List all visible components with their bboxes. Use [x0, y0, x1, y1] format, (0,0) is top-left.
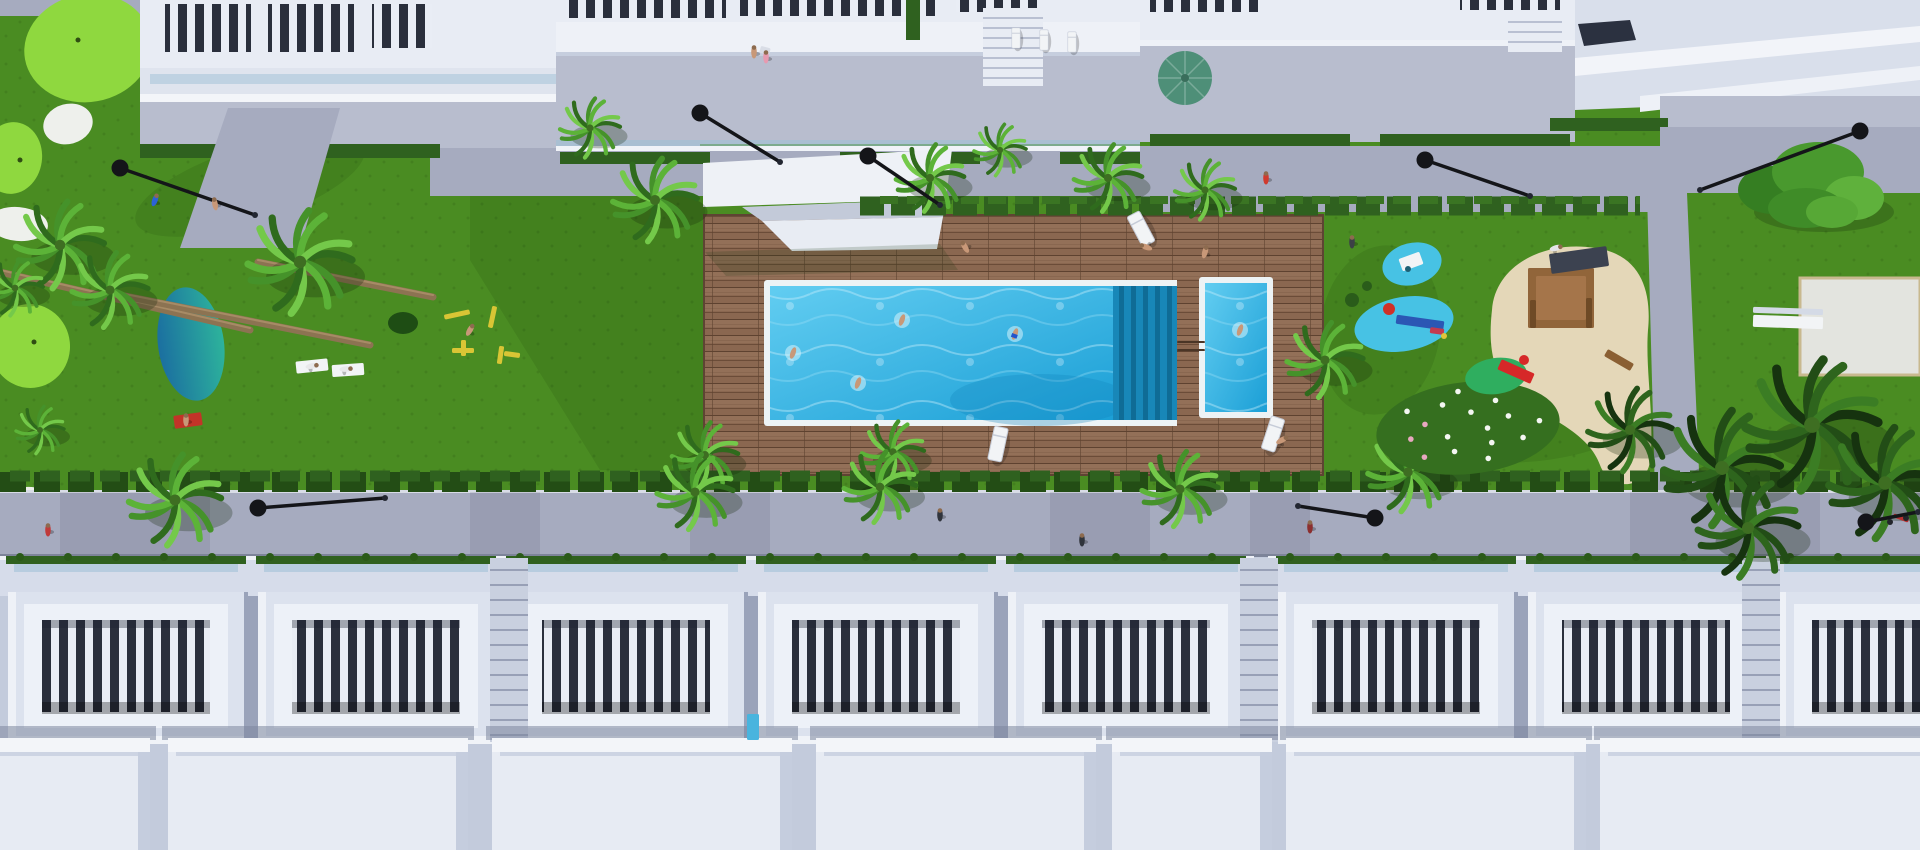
rear-roof-box [1106, 726, 1278, 850]
pergola-inner-shadow [792, 702, 960, 714]
palm-crown [1201, 186, 1208, 193]
prop [1362, 281, 1372, 291]
building-shadow [1250, 492, 1310, 562]
planter-strip [560, 152, 710, 164]
rear-roof-box [810, 726, 1102, 850]
swimmer [1007, 326, 1023, 342]
townhouse-unit [748, 553, 1008, 744]
palm-crown [169, 494, 180, 505]
bloom [1440, 402, 1446, 408]
gap-wall [1514, 592, 1528, 742]
box-fascia [1600, 738, 1920, 752]
townhouse-unit [248, 553, 508, 744]
lamp-head [1858, 514, 1875, 531]
planter-plant [564, 553, 572, 561]
golf-hole [32, 340, 37, 345]
bloom [1422, 454, 1428, 460]
swimmer [1232, 322, 1248, 338]
person-head [764, 50, 769, 55]
prop [1345, 293, 1359, 307]
planter-plant [1680, 553, 1688, 561]
palm-crown [1104, 174, 1112, 182]
aerial-resort-render [0, 0, 1920, 850]
lamp-head [692, 105, 709, 122]
bloom [1455, 389, 1461, 395]
prop [1536, 276, 1586, 320]
pergola-inner-shadow [1812, 620, 1920, 628]
lounger-bed [1012, 28, 1020, 48]
promenade [0, 490, 1920, 562]
stairwell [1742, 558, 1780, 742]
townhouse-unit [1768, 553, 1920, 744]
rear-roof-box [162, 726, 474, 850]
lounger-bed [1068, 32, 1076, 52]
townhouse-unit [0, 553, 258, 744]
swimmer [850, 375, 866, 391]
pergola-inner-shadow [1562, 702, 1730, 714]
lamp-head [1417, 152, 1434, 169]
planter-plant [1334, 553, 1342, 561]
palm-crown [876, 483, 885, 492]
pergola-inner-shadow [292, 702, 460, 714]
bloom [1520, 435, 1526, 441]
planter-plant [16, 553, 24, 561]
planter-plant [1016, 553, 1024, 561]
bloom [1485, 456, 1491, 462]
prop [1441, 333, 1447, 339]
planter-plant [612, 553, 620, 561]
planter-plant [660, 553, 668, 561]
planter-plant [1112, 553, 1120, 561]
stairwell [1240, 558, 1278, 742]
rendered-scene [0, 0, 1920, 850]
rear-roof-box [0, 726, 156, 850]
box-side [780, 752, 792, 850]
rear-roof-box [1280, 726, 1592, 850]
planter-strip [1060, 152, 1140, 164]
building-b-terrace [556, 56, 1140, 144]
lamp-pole [252, 212, 258, 218]
pergola-inner-shadow [1562, 620, 1730, 628]
pergola-inner-shadow [542, 702, 710, 714]
palm-crown [55, 240, 66, 251]
prop [1405, 266, 1411, 272]
planter-plant [766, 553, 774, 561]
planter-plant [1286, 553, 1294, 561]
prop [388, 312, 418, 334]
roof-highlight [1528, 592, 1536, 742]
prop [1383, 303, 1395, 315]
planter-plant [266, 553, 274, 561]
planter-strip [1380, 134, 1570, 146]
pergola-inner-shadow [542, 620, 710, 628]
planter-plant [1478, 553, 1486, 561]
pergola-slats [1812, 620, 1920, 712]
pergola-inner-shadow [292, 620, 460, 628]
box-line [824, 752, 1084, 756]
box-fascia [1112, 738, 1272, 752]
building-shadow [1050, 492, 1150, 562]
bloom [1485, 425, 1491, 431]
planter-plant [862, 553, 870, 561]
fascia-shadow [556, 52, 1140, 56]
planter-plant [1834, 553, 1842, 561]
pergola-inner-shadow [792, 620, 960, 628]
pool-deep-shade [950, 374, 1130, 426]
pergola-slats [1042, 620, 1210, 712]
roof-highlight [8, 592, 16, 742]
planter-plant [1882, 553, 1890, 561]
pool-step-edge [1167, 286, 1172, 420]
planter-plant [1430, 553, 1438, 561]
palm-crown [997, 147, 1003, 153]
lamp-head [112, 160, 129, 177]
box-shadow [1594, 726, 1920, 740]
palm-crown [1625, 425, 1635, 435]
gap-wall [244, 592, 258, 742]
planter-plant [458, 553, 466, 561]
swimmer [894, 312, 910, 328]
planter-plant [1536, 553, 1544, 561]
prop [1519, 355, 1529, 365]
box-fascia [816, 738, 1096, 752]
townhouse-unit [498, 553, 758, 744]
person-head [1264, 171, 1269, 176]
planter-plant [314, 553, 322, 561]
pergola-inner-shadow [1042, 702, 1210, 714]
planter-plant [1208, 553, 1216, 561]
pergola-slats [542, 620, 710, 712]
box-side [1574, 752, 1586, 850]
planter-plant [1632, 553, 1640, 561]
person-head [1080, 533, 1085, 538]
hedge-strip [906, 0, 920, 40]
pool-step-edge [1155, 286, 1160, 420]
townhouse-unit [1518, 553, 1778, 744]
box-shadow [1280, 726, 1592, 740]
palm-crown [1878, 476, 1891, 489]
pergola-slats [792, 620, 960, 712]
pergola-roof-slats [165, 4, 251, 52]
lamp-pole [777, 159, 783, 165]
pergola-inner-shadow [1812, 702, 1920, 714]
prop [1177, 349, 1205, 351]
lamp-head [1367, 510, 1384, 527]
bloom [1468, 409, 1474, 415]
planter-plant [410, 553, 418, 561]
planter-plant [362, 553, 370, 561]
box-side [138, 752, 150, 850]
bloom [1452, 449, 1458, 455]
planter-plant [1064, 553, 1072, 561]
pool-step-edge [1131, 286, 1136, 420]
tree-canopy [1806, 196, 1858, 228]
pergola-roof-slats [1150, 0, 1260, 12]
box-shadow [810, 726, 1102, 740]
planter-plant [1584, 553, 1592, 561]
rear-roof-box [486, 726, 798, 850]
person-head [184, 413, 189, 418]
box-fascia [1286, 738, 1586, 752]
pergola-inner-shadow [1042, 620, 1210, 628]
person-head [1350, 235, 1355, 240]
pergola-slats [292, 620, 460, 712]
box-line [1608, 752, 1920, 756]
palm-crown [1715, 461, 1729, 475]
palm-crown [12, 285, 19, 292]
palm-crown [690, 487, 699, 496]
pergola-slats [1312, 620, 1480, 712]
palm-crown [37, 427, 43, 433]
building-c-terrace [1660, 96, 1920, 130]
roof-highlight [758, 592, 766, 742]
rear-roof-box [1594, 726, 1920, 850]
lamp-pole [1295, 503, 1301, 509]
palm-crown [105, 285, 114, 294]
building-b-fascia [556, 22, 1140, 56]
lamp-head [860, 148, 877, 165]
pergola-slats [1562, 620, 1730, 712]
palm-crown [650, 195, 660, 205]
box-side [1260, 752, 1272, 850]
bloom [1537, 418, 1543, 424]
person-head [938, 508, 943, 513]
pool-step-edge [1143, 286, 1148, 420]
box-fascia [0, 738, 150, 752]
pergola-roof-slats [268, 4, 354, 52]
bloom [1404, 409, 1410, 415]
balustrade-fascia [556, 146, 1140, 151]
bloom [1408, 436, 1414, 442]
lamp-head [250, 500, 267, 517]
kids-pool-texture [1205, 283, 1267, 412]
prop [1177, 341, 1205, 343]
box-line [1294, 752, 1574, 756]
palm-crown [294, 256, 306, 268]
pergola-roof-slats [372, 4, 432, 48]
gap-wall [994, 592, 1008, 742]
prop [1753, 315, 1823, 329]
box-shadow [0, 726, 156, 740]
lamp-head [1852, 123, 1869, 140]
pergola-roof-slats [566, 0, 726, 18]
box-line [176, 752, 456, 756]
townhouse-roofs [0, 553, 1920, 850]
box-fascia [492, 738, 792, 752]
golf-hole [18, 158, 23, 163]
palm-crown [586, 124, 593, 131]
planter-plant [814, 553, 822, 561]
planter-plant [910, 553, 918, 561]
pergola-inner-shadow [42, 620, 210, 628]
box-line [1120, 752, 1260, 756]
prop [1887, 519, 1893, 525]
box-fascia [168, 738, 468, 752]
person-head [752, 45, 757, 50]
lamp-pole [1527, 193, 1533, 199]
stairwell [490, 558, 528, 742]
palm-crown [1175, 484, 1184, 493]
planter-plant [208, 553, 216, 561]
townhouse-unit [1268, 553, 1528, 744]
person-head [46, 523, 51, 528]
building-shadow [470, 492, 540, 562]
townhouse-unit [998, 553, 1258, 744]
bloom [1489, 440, 1495, 446]
planter-strip [1550, 118, 1668, 131]
prop [1586, 298, 1592, 328]
box-line [0, 752, 138, 756]
pergola-roof-slats [1460, 0, 1560, 10]
bloom [1493, 398, 1499, 404]
roof-highlight [1008, 592, 1016, 742]
pergola-inner-shadow [1312, 702, 1480, 714]
planter-plant [958, 553, 966, 561]
box-side [456, 752, 468, 850]
box-line [500, 752, 780, 756]
box-shadow [1106, 726, 1278, 740]
bloom [1422, 422, 1428, 428]
box-shadow [162, 726, 474, 740]
lamp-pole [382, 495, 388, 501]
parasol [1158, 51, 1212, 105]
planter-plant [160, 553, 168, 561]
golf-hole [76, 38, 81, 43]
bloom [1445, 434, 1451, 440]
palm-crown [1320, 355, 1329, 364]
planter-strip [1776, 556, 1920, 564]
pool-step-edge [1119, 286, 1124, 420]
pergola-slats [42, 620, 210, 712]
roof-highlight [258, 592, 266, 742]
palm-crown [1804, 417, 1820, 433]
planter-plant [64, 553, 72, 561]
lamp-pole [937, 202, 943, 208]
box-side [1084, 752, 1096, 850]
person-head [1308, 520, 1313, 525]
planter-strip [1150, 134, 1350, 146]
planter-plant [112, 553, 120, 561]
pergola-inner-shadow [42, 702, 210, 714]
lounger-bed [1040, 30, 1048, 50]
planter-plant [708, 553, 716, 561]
roof-highlight [1278, 592, 1286, 742]
palm-crown [1742, 522, 1754, 534]
lamp-pole [1697, 187, 1703, 193]
swimmer [785, 345, 801, 361]
palm-crown [926, 174, 934, 182]
bloom [1506, 413, 1512, 419]
prop [461, 340, 466, 356]
prop [747, 714, 759, 740]
pergola-inner-shadow [1312, 620, 1480, 628]
planter-plant [1382, 553, 1390, 561]
planter-plant [1160, 553, 1168, 561]
prop [1530, 300, 1536, 328]
